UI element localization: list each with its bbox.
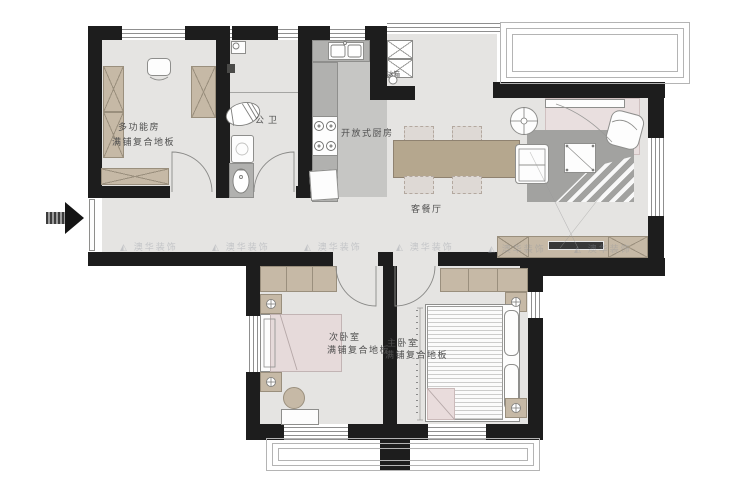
wall — [246, 266, 260, 316]
nightstand-icon — [260, 372, 282, 392]
wardrobe-divider — [497, 268, 498, 292]
label-second-bedroom: 次卧室 — [329, 330, 361, 343]
desk-chair-icon — [283, 387, 305, 409]
arrow-head — [65, 202, 84, 234]
side-table-icon — [510, 107, 538, 135]
window — [648, 138, 664, 216]
label-master-bedroom-floor: 满铺复合地板 — [385, 348, 448, 361]
wall — [232, 26, 278, 40]
label-living-dining: 客餐厅 — [411, 202, 443, 215]
wall — [88, 186, 170, 198]
watermark-text: 澳华装饰 — [134, 243, 178, 253]
watermark-text: 澳华装饰 — [502, 245, 546, 255]
entry-door-leaf — [89, 199, 95, 251]
wall — [528, 266, 543, 292]
wall — [378, 252, 393, 266]
nightstand-icon — [260, 294, 282, 314]
window — [246, 316, 260, 372]
base-cabinet-icon — [309, 169, 339, 201]
entrance-arrow-icon — [46, 201, 86, 235]
label-bathroom: 公卫 — [255, 113, 281, 126]
wall — [493, 82, 665, 98]
wall — [648, 98, 664, 138]
watermark: ◭ 澳华装饰 — [396, 240, 454, 253]
wardrobe-icon — [440, 268, 528, 292]
wall — [88, 252, 333, 266]
watermark-logo-icon: ◭ — [120, 243, 129, 253]
watermark: ◭ 澳华装饰 — [304, 240, 362, 253]
watermark-text: 澳华装饰 — [410, 243, 454, 253]
balcony-frame — [512, 34, 678, 72]
cabinet-icon — [101, 168, 169, 185]
kitchen-sink-icon — [328, 42, 364, 60]
dimension-marks — [416, 310, 418, 418]
window — [122, 26, 185, 40]
dining-chair-icon — [452, 176, 482, 194]
label-second-bedroom-floor: 满铺复合地板 — [327, 343, 390, 356]
watermark-text: 澳华装饰 — [318, 243, 362, 253]
wardrobe-icon — [260, 266, 337, 292]
fridge-icon — [387, 40, 413, 59]
watermark-logo-icon: ◭ — [574, 245, 583, 255]
sofa-icon — [515, 144, 549, 184]
floor-door-gap-bed2 — [333, 252, 378, 266]
floor-plan: 多功能房 满铺复合地板 公卫 开放式厨房 冰箱 客餐厅 次卧室 满铺复合地板 主… — [0, 0, 750, 500]
wardrobe-divider — [312, 266, 313, 292]
floor-door-gap-bath — [253, 186, 296, 198]
wall — [216, 26, 230, 198]
desk-icon — [281, 409, 319, 425]
window — [387, 20, 500, 34]
watermark-logo-icon: ◭ — [304, 243, 313, 253]
label-multi-room-floor: 满铺复合地板 — [112, 135, 175, 148]
floor-door-gap-master — [393, 252, 438, 266]
dining-chair-icon — [404, 176, 434, 194]
stove-icon — [312, 116, 338, 156]
wardrobe-divider — [286, 266, 287, 292]
nightstand-icon — [505, 398, 527, 418]
watermark-logo-icon: ◭ — [488, 245, 497, 255]
coffee-table-icon — [564, 143, 596, 173]
arrow-shaft — [46, 212, 66, 224]
wall — [370, 26, 387, 86]
bed-fold-icon — [427, 388, 455, 420]
watermark-text: 澳华装饰 — [588, 245, 632, 255]
watermark: ◭ 澳华装饰 — [574, 242, 632, 255]
label-kitchen: 开放式厨房 — [341, 126, 394, 139]
watermark: ◭ 澳华装饰 — [120, 240, 178, 253]
wall — [88, 26, 102, 198]
balcony-frame — [278, 448, 528, 461]
wall — [528, 318, 543, 440]
chair-icon — [147, 58, 171, 76]
watermark-logo-icon: ◭ — [396, 243, 405, 253]
washing-machine-icon — [231, 135, 254, 163]
pillow-icon — [504, 310, 519, 356]
dining-table-icon — [393, 140, 520, 178]
watermark-text: 澳华装饰 — [226, 243, 270, 253]
wardrobe-divider — [468, 268, 469, 292]
sink-counter — [229, 163, 254, 198]
wall — [370, 86, 415, 100]
wardrobe-icon — [191, 66, 216, 118]
watermark: ◭ 澳华装饰 — [488, 242, 546, 255]
curtain-rail-icon — [545, 99, 625, 108]
wall — [185, 26, 216, 40]
label-multi-room: 多功能房 — [118, 120, 160, 133]
label-fridge: 冰箱 — [387, 68, 400, 78]
room-divider-line — [230, 92, 298, 93]
wardrobe-icon — [103, 66, 124, 112]
wall — [298, 26, 312, 186]
shower-head-icon — [227, 64, 235, 73]
watermark-logo-icon: ◭ — [212, 243, 221, 253]
window — [330, 26, 365, 40]
watermark: ◭ 澳华装饰 — [212, 240, 270, 253]
window — [528, 292, 543, 318]
floor-door-gap-multi — [170, 186, 216, 198]
floor-drain-icon — [231, 41, 246, 54]
